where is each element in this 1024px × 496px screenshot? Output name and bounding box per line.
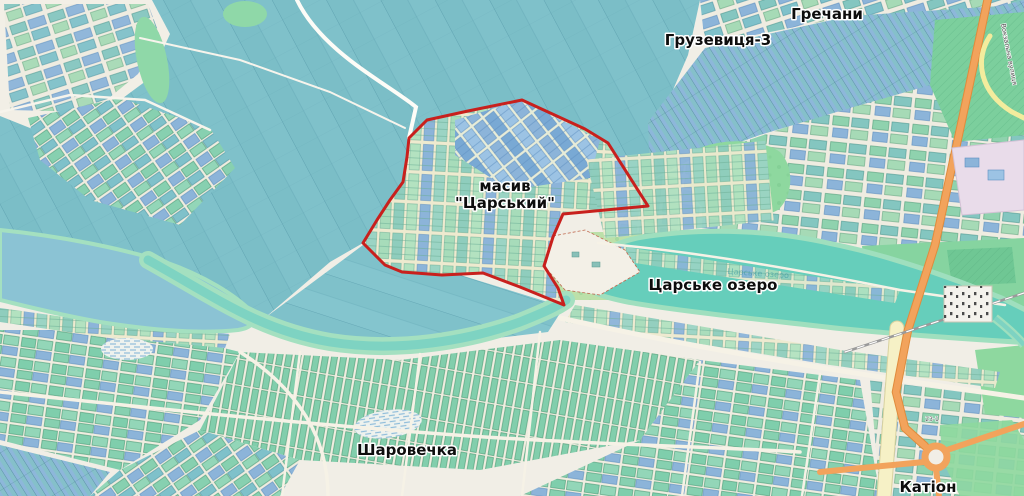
label-hrechany: Гречани [791,5,863,23]
label-masyv-line1: масив [479,177,530,195]
map-svg: Гречани Грузевиця-3 масив "Царський" Цар… [0,0,1024,496]
label-hruzevytsia: Грузевиця-3 [665,31,771,49]
label-sharovechka: Шаровечка [357,441,457,459]
label-ref-23-1: 23-1 [925,416,939,423]
label-lake: Царське озеро [649,276,778,294]
roundabout-kation [925,446,947,468]
label-masyv-line2: "Царський" [455,194,555,212]
label-kation: Катіон [900,478,957,496]
map-canvas[interactable]: Гречани Грузевиця-3 масив "Царський" Цар… [0,0,1024,496]
